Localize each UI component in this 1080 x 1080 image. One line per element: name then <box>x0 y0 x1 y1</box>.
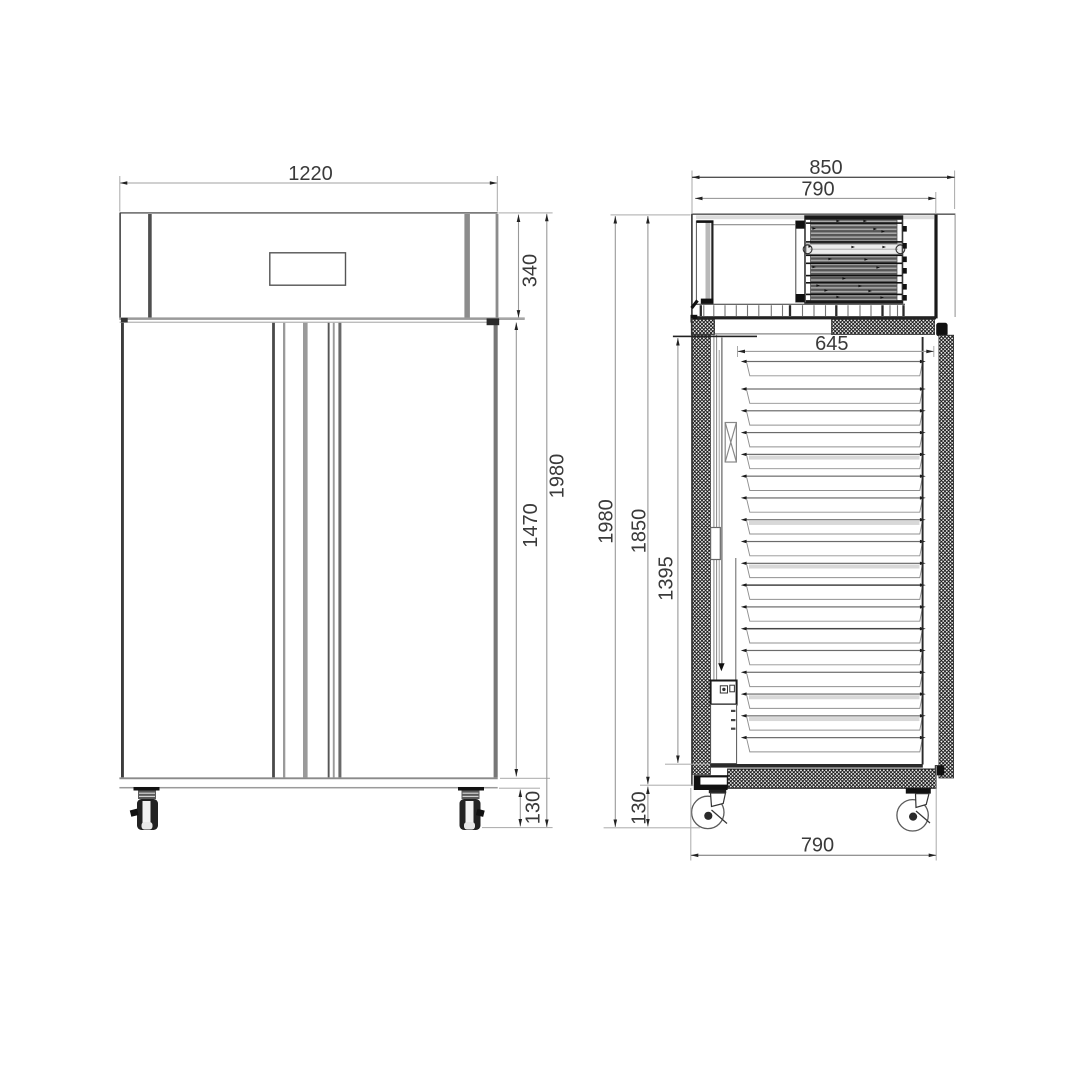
svg-text:340: 340 <box>520 254 542 287</box>
svg-text:790: 790 <box>801 835 834 857</box>
svg-text:1470: 1470 <box>520 503 542 548</box>
svg-text:1220: 1220 <box>288 163 333 185</box>
svg-text:1395: 1395 <box>656 556 678 601</box>
svg-text:1850: 1850 <box>629 509 651 554</box>
svg-text:790: 790 <box>801 179 834 201</box>
svg-text:130: 130 <box>523 791 545 824</box>
svg-text:850: 850 <box>809 157 842 179</box>
svg-text:1980: 1980 <box>547 454 569 499</box>
svg-text:1980: 1980 <box>596 499 618 544</box>
svg-text:130: 130 <box>629 791 651 824</box>
svg-text:645: 645 <box>815 333 848 355</box>
